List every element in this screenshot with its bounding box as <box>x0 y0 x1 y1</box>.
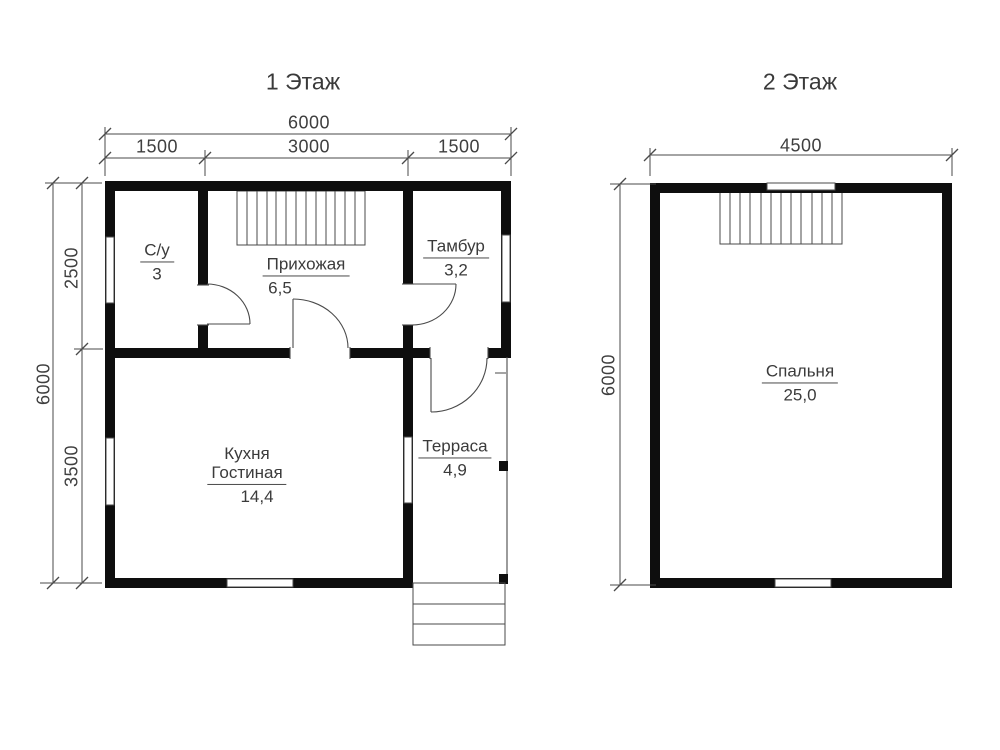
room-label-vestibule: Тамбур 3,2 <box>423 236 489 279</box>
window-bedroom-bottom <box>775 579 831 587</box>
window-kitchen-terrace <box>404 437 412 503</box>
dim-floor1-height-total: 6000 <box>34 363 55 405</box>
floor1-stairs <box>237 191 365 245</box>
room-area: 3 <box>152 263 161 284</box>
room-name: С/у <box>140 240 174 262</box>
door-hallway-kitchen <box>293 299 348 348</box>
dim-floor1-height-bottom: 3500 <box>62 445 83 487</box>
dim-floor1-seg-right: 1500 <box>438 137 480 158</box>
room-name: Тамбур <box>423 236 489 258</box>
floor1-terrace-steps <box>413 583 505 645</box>
room-area: 4,9 <box>443 459 467 480</box>
door-bathroom <box>207 284 250 324</box>
floor2-stairs <box>720 191 842 244</box>
floor1-title: 1 Этаж <box>266 69 340 96</box>
dim-floor2-width-total: 4500 <box>780 136 822 157</box>
wall-top <box>105 181 511 191</box>
room-label-kitchen: Кухня Гостиная 14,4 <box>207 444 286 506</box>
floor1-plan <box>40 127 517 645</box>
room-area: 14,4 <box>240 485 273 506</box>
room-name-line2: Гостиная <box>211 463 282 482</box>
window-vestibule <box>502 235 510 302</box>
room-area: 25,0 <box>783 384 816 405</box>
floorplan-canvas: 1 Этаж 2 Этаж 6000 1500 3000 1500 2500 6… <box>0 0 1000 750</box>
room-area: 3,2 <box>444 259 468 280</box>
room-name: Кухня Гостиная <box>207 444 286 485</box>
wall-hallway-vestibule <box>403 191 413 578</box>
room-name: Спальня <box>762 361 838 383</box>
dim-floor1-seg-mid: 3000 <box>288 137 330 158</box>
room-name: Терраса <box>418 436 491 458</box>
dim-floor1-width-total: 6000 <box>288 113 330 134</box>
window-bathroom <box>106 237 114 303</box>
terrace-post-upper <box>499 461 508 471</box>
dim-floor1-height-top: 2500 <box>62 247 83 289</box>
window-kitchen-bottom <box>227 579 293 587</box>
room-name-line1: Кухня <box>211 444 282 463</box>
room-label-bedroom: Спальня 25,0 <box>762 361 838 404</box>
stair-opening <box>767 183 835 190</box>
dim-floor2-height-total: 6000 <box>599 354 620 396</box>
room-area: 6,5 <box>268 277 292 298</box>
plan-linework <box>0 0 1000 750</box>
dim-floor1-seg-left: 1500 <box>136 137 178 158</box>
room-label-bathroom: С/у 3 <box>140 240 174 283</box>
door-entrance-vestibule <box>412 284 456 325</box>
floor2-title: 2 Этаж <box>763 69 837 96</box>
window-kitchen-left <box>106 438 114 505</box>
room-name: Прихожая <box>263 254 350 276</box>
wall-left <box>650 183 660 588</box>
door-vestibule-terrace <box>431 358 487 412</box>
wall-right <box>942 183 952 588</box>
room-label-terrace: Терраса 4,9 <box>418 436 491 479</box>
room-label-hallway: Прихожая 6,5 <box>263 254 350 297</box>
